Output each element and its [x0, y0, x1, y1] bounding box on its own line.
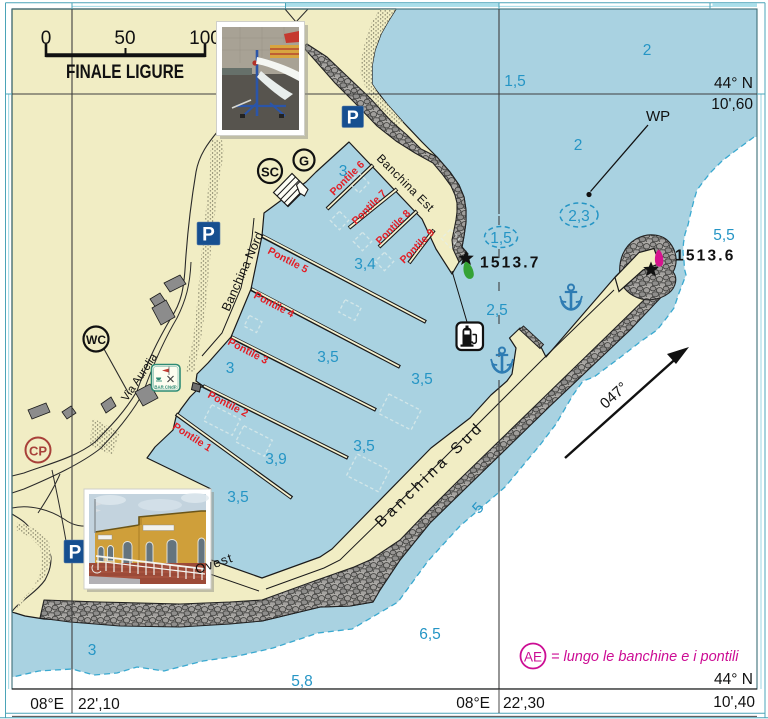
svg-text:0: 0 [41, 28, 52, 49]
svg-text:44° N: 44° N [714, 75, 753, 92]
svg-text:2: 2 [643, 42, 652, 59]
svg-text:3,5: 3,5 [317, 349, 339, 366]
svg-text:1,5: 1,5 [490, 230, 512, 247]
svg-text:BAR CNdP: BAR CNdP [154, 385, 176, 390]
svg-text:22',10: 22',10 [78, 696, 120, 713]
svg-text:10',40: 10',40 [713, 694, 755, 711]
svg-text:3,5: 3,5 [353, 438, 375, 455]
svg-text:= lungo le banchine e i pontil: = lungo le banchine e i pontili [551, 649, 739, 665]
svg-text:1513.7: 1513.7 [480, 255, 541, 272]
svg-text:SC: SC [261, 165, 280, 180]
svg-text:CP: CP [29, 444, 47, 459]
svg-text:1,5: 1,5 [504, 73, 526, 90]
svg-text:2,3: 2,3 [568, 208, 590, 225]
svg-text:G: G [299, 154, 309, 169]
svg-text:08°E: 08°E [456, 695, 490, 712]
svg-text:FINALE LIGURE: FINALE LIGURE [66, 61, 184, 83]
svg-text:3,5: 3,5 [411, 371, 433, 388]
svg-text:WC: WC [86, 333, 106, 347]
svg-text:3,5: 3,5 [227, 489, 249, 506]
svg-text:50: 50 [114, 28, 135, 49]
svg-text:5,5: 5,5 [713, 227, 735, 244]
svg-text:P: P [69, 543, 82, 564]
svg-text:3: 3 [226, 360, 235, 377]
svg-text:3,9: 3,9 [265, 451, 287, 468]
svg-text:6,5: 6,5 [419, 626, 441, 643]
svg-text:WP: WP [646, 108, 670, 125]
svg-text:3: 3 [88, 642, 97, 659]
svg-text:08°E: 08°E [30, 696, 64, 713]
svg-text:22',30: 22',30 [503, 695, 545, 712]
svg-text:3,4: 3,4 [354, 256, 376, 273]
svg-text:AE: AE [524, 650, 542, 665]
svg-text:2,5: 2,5 [486, 302, 508, 319]
svg-text:P: P [202, 225, 215, 246]
svg-text:5,8: 5,8 [291, 673, 313, 690]
svg-text:2: 2 [574, 137, 583, 154]
svg-text:1513.6: 1513.6 [675, 248, 736, 265]
svg-text:44° N: 44° N [714, 671, 753, 688]
svg-text:P: P [347, 108, 359, 128]
svg-text:10',60: 10',60 [711, 96, 753, 113]
